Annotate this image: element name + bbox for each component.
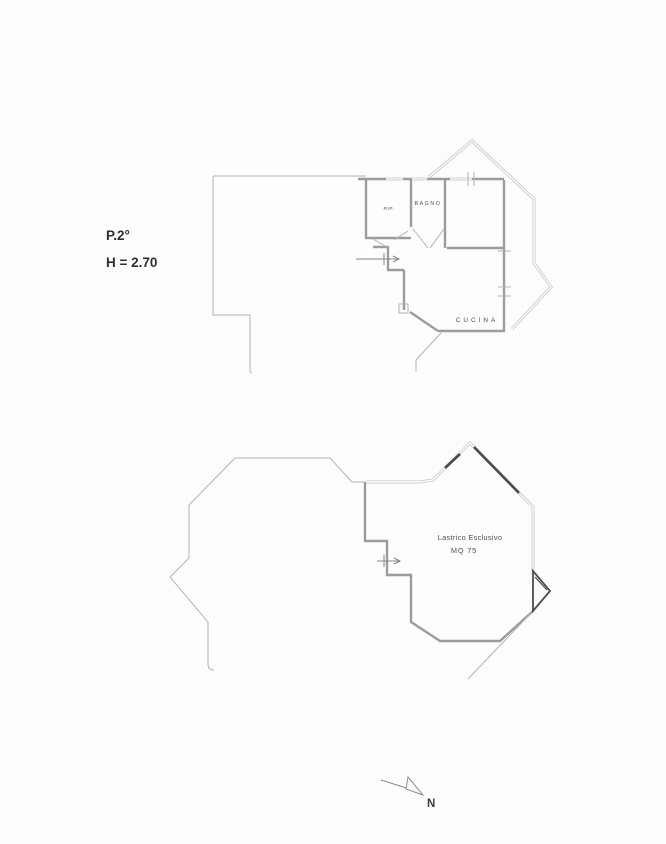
roof-outline [170,458,365,670]
floor-level-label: P.2° [106,228,130,243]
room-label-bagno: BAGNO [415,201,442,207]
room-label-rip: RIP. [383,206,394,212]
wall-kitchen-diagonal [410,312,438,331]
lower-floor-plan: Lastrico Esclusivo MQ 75 [170,443,550,679]
terrace-area-label: Lastrico Esclusivo [438,533,503,542]
ceiling-height-label: H = 2.70 [106,255,157,270]
lower-edge-diagonal [416,333,441,372]
terrace-edge-diagonal [468,611,533,679]
terrace-size-label: MQ 75 [451,546,477,555]
upper-floor-plan: P.2° H = 2.70 RIP. BAGNO CUCINA [106,141,551,373]
floorplan-drawing: P.2° H = 2.70 RIP. BAGNO CUCINA [0,0,666,844]
terrace-arrow-icon [377,555,400,567]
north-label: N [427,798,435,810]
apartment-outline-left [213,176,252,373]
entrance-arrow-icon [356,253,399,265]
gable-hatch-right [474,447,519,493]
north-arrow-head [406,777,423,795]
terrace-gable-outline [365,443,533,571]
north-arrow-icon: N [381,777,435,810]
gable-hatch-left [445,454,460,468]
floorplan-page: P.2° H = 2.70 RIP. BAGNO CUCINA [0,0,666,844]
roof-gable-outline [429,141,551,329]
room-label-cucina: CUCINA [456,317,499,324]
